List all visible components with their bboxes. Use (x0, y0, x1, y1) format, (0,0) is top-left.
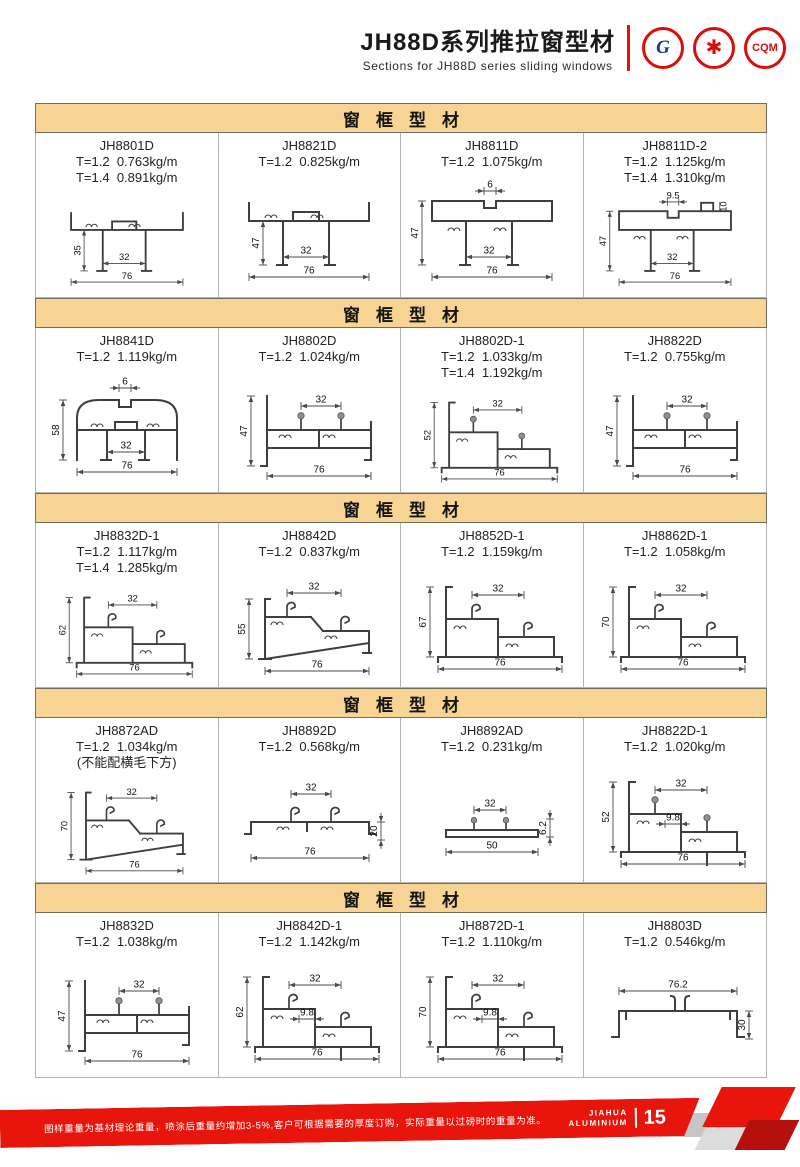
section-band-title: 窗框型材 (35, 688, 767, 718)
svg-text:9.5: 9.5 (666, 190, 679, 200)
profile-code: JH8842D (282, 528, 336, 544)
profile-section: 窗框型材JH8872ADT=1.2 1.034kg/m(不能配横毛下方)7032… (35, 688, 767, 883)
section-band-title: 窗框型材 (35, 298, 767, 328)
footer-band: 图样重量为基材理论重量，喷涂后重量约增加3-5%,客户可根据需要的厚度订购，实际… (0, 1098, 700, 1148)
svg-text:76: 76 (312, 1047, 324, 1058)
profile-drawing-svg: 523276 (402, 382, 582, 492)
profile-spec: T=1.2 1.142kg/m (258, 934, 360, 950)
section-band-title: 窗框型材 (35, 883, 767, 913)
svg-text:32: 32 (126, 786, 136, 796)
profile-drawing: 5232769.8 (584, 755, 767, 882)
profile-spec: T=1.2 1.058kg/m (624, 544, 726, 560)
svg-text:32: 32 (316, 394, 328, 405)
profile-cell: JH8802DT=1.2 1.024kg/m324776 (219, 328, 402, 492)
profile-drawing: 6473276 (401, 170, 583, 297)
profile-drawing-svg: 703276 (37, 772, 217, 882)
profile-spec: T=1.2 0.231kg/m (441, 739, 543, 755)
profile-drawing-svg: 322076 (219, 760, 399, 878)
profile-drawing: 523276 (401, 381, 583, 492)
svg-text:52: 52 (422, 429, 432, 439)
svg-text:76: 76 (305, 846, 317, 857)
svg-text:50: 50 (486, 840, 498, 851)
svg-text:30: 30 (737, 1019, 748, 1031)
profile-code: JH8811D-2 (642, 138, 707, 154)
profile-drawing: 324776 (36, 950, 218, 1077)
profile-drawing: 6583276 (36, 365, 218, 492)
profile-code: JH8892AD (460, 723, 523, 739)
profile-drawing-svg: 6232769.8 (219, 955, 399, 1073)
svg-text:62: 62 (57, 624, 67, 634)
svg-text:70: 70 (59, 820, 69, 830)
profile-spec: (不能配横毛下方) (77, 755, 177, 771)
svg-text:76: 76 (494, 1047, 506, 1058)
title-block: JH88D系列推拉窗型材 Sections for JH88D series s… (360, 22, 615, 73)
profile-spec: T=1.4 1.310kg/m (624, 170, 726, 186)
profile-drawing-svg: 353276 (37, 187, 217, 297)
profile-drawing-svg: 7032769.8 (402, 955, 582, 1073)
profile-spec: T=1.2 1.125kg/m (624, 154, 726, 170)
svg-text:76.2: 76.2 (668, 979, 688, 990)
svg-text:52: 52 (601, 811, 612, 823)
svg-text:6.2: 6.2 (538, 820, 549, 834)
profile-cell: JH8892ADT=1.2 0.231kg/m326.250 (401, 718, 584, 882)
profile-code: JH8803D (648, 918, 702, 934)
profile-code: JH8832D (100, 918, 154, 934)
profile-section: 窗框型材JH8832DT=1.2 1.038kg/m324776JH8842D-… (35, 883, 767, 1078)
svg-text:76: 76 (122, 270, 132, 280)
profile-spec: T=1.2 1.020kg/m (624, 739, 726, 755)
profile-spec: T=1.4 1.192kg/m (441, 365, 543, 381)
svg-text:76: 76 (304, 265, 316, 276)
profile-drawing-svg: 324776 (37, 955, 217, 1073)
gb-cert-icon: G (642, 27, 684, 69)
svg-text:76: 76 (494, 657, 506, 668)
svg-text:32: 32 (119, 252, 129, 262)
profile-drawing-svg: 6583276 (37, 370, 217, 488)
svg-text:32: 32 (133, 979, 145, 990)
section-cells: JH8832DT=1.2 1.038kg/m324776JH8842D-1T=1… (35, 913, 767, 1078)
svg-text:76: 76 (131, 1049, 143, 1060)
profile-section: 窗框型材JH8801DT=1.2 0.763kg/mT=1.4 0.891kg/… (35, 103, 767, 298)
svg-text:9.8: 9.8 (483, 1007, 497, 1018)
svg-text:32: 32 (492, 398, 502, 408)
profile-spec: T=1.2 1.038kg/m (76, 934, 178, 950)
profile-drawing-svg: 553276 (219, 565, 399, 683)
svg-text:10: 10 (718, 201, 728, 211)
profile-drawing-svg: 673276 (402, 565, 582, 683)
svg-text:6: 6 (487, 179, 493, 190)
profile-drawing-svg: 703276 (585, 565, 765, 683)
profile-cell: JH8872ADT=1.2 1.034kg/m(不能配横毛下方)703276 (36, 718, 219, 882)
svg-text:9.8: 9.8 (300, 1007, 314, 1018)
profile-code: JH8892D (282, 723, 336, 739)
profile-cell: JH8862D-1T=1.2 1.058kg/m703276 (584, 523, 767, 687)
profile-drawing-svg: 5232769.8 (585, 760, 765, 878)
profile-drawing: 553276 (219, 560, 401, 687)
profile-spec: T=1.2 1.024kg/m (258, 349, 360, 365)
profile-spec: T=1.2 0.568kg/m (258, 739, 360, 755)
svg-text:67: 67 (418, 616, 429, 628)
profile-spec: T=1.2 1.033kg/m (441, 349, 543, 365)
profile-cell: JH8842DT=1.2 0.837kg/m553276 (219, 523, 402, 687)
header-divider (627, 25, 630, 71)
profile-spec: T=1.2 0.755kg/m (624, 349, 726, 365)
profile-code: JH8822D (648, 333, 702, 349)
svg-text:35: 35 (72, 245, 82, 255)
profile-cell: JH8801DT=1.2 0.763kg/mT=1.4 0.891kg/m353… (36, 133, 219, 297)
svg-text:76: 76 (670, 270, 680, 280)
svg-text:70: 70 (601, 616, 612, 628)
profile-spec: T=1.4 0.891kg/m (76, 170, 178, 186)
svg-text:62: 62 (235, 1006, 246, 1018)
brand-divider (634, 1108, 636, 1128)
profile-spec: T=1.4 1.285kg/m (76, 560, 178, 576)
profile-code: JH8821D (282, 138, 336, 154)
svg-text:55: 55 (237, 623, 248, 635)
profile-drawing: 9.547327610 (584, 186, 767, 297)
profile-cell: JH8803DT=1.2 0.546kg/m76.230 (584, 913, 767, 1077)
svg-text:76: 76 (494, 467, 504, 477)
svg-text:76: 76 (679, 464, 691, 475)
svg-text:76: 76 (677, 852, 689, 863)
profile-spec: T=1.2 1.119kg/m (76, 349, 177, 365)
profile-cell: JH8802D-1T=1.2 1.033kg/mT=1.4 1.192kg/m5… (401, 328, 584, 492)
profile-drawing: 326.250 (401, 755, 583, 882)
profile-drawing: 7032769.8 (401, 950, 583, 1077)
svg-text:47: 47 (251, 237, 262, 249)
profile-code: JH8832D-1 (94, 528, 160, 544)
header: JH88D系列推拉窗型材 Sections for JH88D series s… (360, 22, 786, 73)
profile-drawing: 76.230 (584, 950, 767, 1077)
profile-cell: JH8852D-1T=1.2 1.159kg/m673276 (401, 523, 584, 687)
svg-text:32: 32 (667, 252, 677, 262)
svg-text:32: 32 (484, 798, 496, 809)
section-cells: JH8841DT=1.2 1.119kg/m6583276JH8802DT=1.… (35, 328, 767, 493)
profile-drawing: 353276 (36, 186, 218, 297)
svg-text:32: 32 (309, 581, 321, 592)
profile-spec: T=1.2 0.837kg/m (258, 544, 360, 560)
svg-text:32: 32 (675, 778, 687, 789)
section-band-title: 窗框型材 (35, 103, 767, 133)
profile-drawing-svg: 623276 (37, 577, 217, 687)
profile-cell: JH8822DT=1.2 0.755kg/m324776 (584, 328, 767, 492)
svg-text:32: 32 (492, 583, 504, 594)
svg-text:9.8: 9.8 (666, 812, 680, 823)
svg-text:76: 76 (312, 659, 324, 670)
profile-spec: T=1.2 1.110kg/m (441, 934, 542, 950)
profile-code: JH8802D (282, 333, 336, 349)
svg-text:32: 32 (127, 593, 137, 603)
profile-cell: JH8892DT=1.2 0.568kg/m322076 (219, 718, 402, 882)
profile-spec: T=1.2 0.825kg/m (258, 154, 360, 170)
svg-text:6: 6 (122, 376, 128, 387)
profile-cell: JH8872D-1T=1.2 1.110kg/m7032769.8 (401, 913, 584, 1077)
profile-code: JH8822D-1 (642, 723, 708, 739)
svg-text:76: 76 (486, 265, 498, 276)
profile-cell: JH8842D-1T=1.2 1.142kg/m6232769.8 (219, 913, 402, 1077)
profile-code: JH8862D-1 (642, 528, 708, 544)
profile-drawing-svg: 324776 (219, 370, 399, 488)
svg-text:76: 76 (129, 662, 139, 672)
svg-text:70: 70 (418, 1006, 429, 1018)
profile-code: JH8872AD (95, 723, 158, 739)
profile-cell: JH8811DT=1.2 1.075kg/m6473276 (401, 133, 584, 297)
profile-drawing-svg: 76.230 (585, 955, 765, 1073)
profile-drawing: 703276 (36, 771, 218, 882)
page-root: JH88D系列推拉窗型材 Sections for JH88D series s… (0, 0, 800, 1167)
profile-code: JH8852D-1 (459, 528, 525, 544)
cqm-cert-icon: CQM (744, 27, 786, 69)
svg-text:76: 76 (129, 859, 139, 869)
profile-code: JH8841D (100, 333, 154, 349)
profile-spec: T=1.2 1.117kg/m (76, 544, 177, 560)
svg-text:47: 47 (57, 1010, 68, 1022)
profile-drawing: 623276 (36, 576, 218, 687)
brand-name: JIAHUA ALUMINIUM (568, 1108, 628, 1129)
svg-text:32: 32 (310, 973, 322, 984)
svg-text:76: 76 (677, 657, 689, 668)
svg-text:76: 76 (314, 464, 326, 475)
svg-text:32: 32 (681, 394, 693, 405)
profile-spec: T=1.2 1.159kg/m (441, 544, 543, 560)
footer-note: 图样重量为基材理论重量，喷涂后重量约增加3-5%,客户可根据需要的厚度订购，实际… (44, 1112, 569, 1135)
svg-text:47: 47 (598, 235, 608, 245)
svg-text:47: 47 (410, 227, 421, 239)
svg-text:47: 47 (605, 425, 616, 437)
footer-brand: JIAHUA ALUMINIUM 15 (568, 1106, 666, 1131)
svg-text:32: 32 (306, 782, 318, 793)
profile-drawing-svg: 6473276 (402, 175, 582, 293)
profile-cell: JH8841DT=1.2 1.119kg/m6583276 (36, 328, 219, 492)
profile-code: JH8842D-1 (276, 918, 342, 934)
profile-spec: T=1.2 0.546kg/m (624, 934, 726, 950)
profile-code: JH8802D-1 (459, 333, 525, 349)
svg-text:32: 32 (492, 973, 504, 984)
profile-cell: JH8832D-1T=1.2 1.117kg/mT=1.4 1.285kg/m6… (36, 523, 219, 687)
profile-section: 窗框型材JH8841DT=1.2 1.119kg/m6583276JH8802D… (35, 298, 767, 493)
svg-text:32: 32 (120, 440, 132, 451)
profile-drawing: 6232769.8 (219, 950, 401, 1077)
svg-text:76: 76 (121, 460, 133, 471)
profile-drawing-svg: 473276 (219, 175, 399, 293)
profile-code: JH8801D (100, 138, 154, 154)
profile-spec: T=1.2 1.034kg/m (76, 739, 178, 755)
page-title: JH88D系列推拉窗型材 (360, 22, 615, 57)
svg-text:58: 58 (51, 424, 62, 436)
profile-section: 窗框型材JH8832D-1T=1.2 1.117kg/mT=1.4 1.285k… (35, 493, 767, 688)
profile-cell: JH8811D-2T=1.2 1.125kg/mT=1.4 1.310kg/m9… (584, 133, 767, 297)
profile-code: JH8872D-1 (459, 918, 525, 934)
cert-logos: G ✱ CQM (642, 27, 786, 69)
svg-text:32: 32 (675, 583, 687, 594)
star-cert-icon: ✱ (693, 27, 735, 69)
profile-drawing: 322076 (219, 755, 401, 882)
svg-text:32: 32 (301, 245, 313, 256)
profile-spec: T=1.2 1.075kg/m (441, 154, 543, 170)
profile-cell: JH8822D-1T=1.2 1.020kg/m5232769.8 (584, 718, 767, 882)
profile-drawing: 703276 (584, 560, 767, 687)
profile-cell: JH8832DT=1.2 1.038kg/m324776 (36, 913, 219, 1077)
section-cells: JH8832D-1T=1.2 1.117kg/mT=1.4 1.285kg/m6… (35, 523, 767, 688)
profile-drawing: 473276 (219, 170, 401, 297)
profile-drawing-svg: 324776 (585, 370, 765, 488)
profile-spec: T=1.2 0.763kg/m (76, 154, 178, 170)
sections: 窗框型材JH8801DT=1.2 0.763kg/mT=1.4 0.891kg/… (35, 103, 767, 1078)
svg-text:32: 32 (483, 245, 495, 256)
profile-drawing-svg: 9.547327610 (585, 187, 765, 297)
section-cells: JH8801DT=1.2 0.763kg/mT=1.4 0.891kg/m353… (35, 133, 767, 298)
section-cells: JH8872ADT=1.2 1.034kg/m(不能配横毛下方)703276JH… (35, 718, 767, 883)
profile-code: JH8811D (465, 138, 518, 154)
page-subtitle: Sections for JH88D series sliding window… (360, 59, 615, 73)
profile-cell: JH8821DT=1.2 0.825kg/m473276 (219, 133, 402, 297)
section-band-title: 窗框型材 (35, 493, 767, 523)
svg-text:47: 47 (239, 425, 250, 437)
profile-drawing: 673276 (401, 560, 583, 687)
profile-drawing-svg: 326.250 (402, 760, 582, 878)
profile-drawing: 324776 (219, 365, 401, 492)
svg-text:20: 20 (369, 825, 380, 837)
page-number: 15 (643, 1106, 666, 1129)
profile-drawing: 324776 (584, 365, 767, 492)
